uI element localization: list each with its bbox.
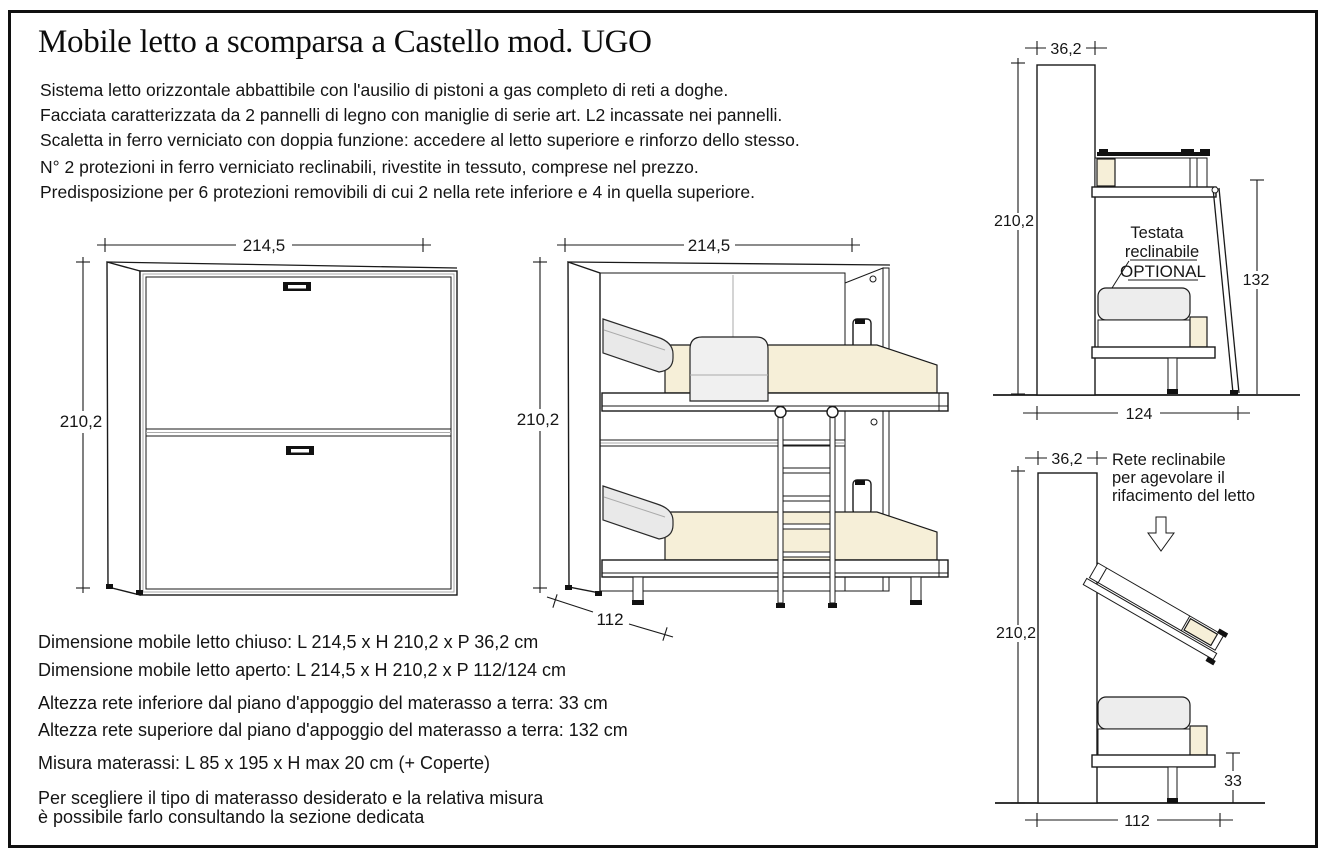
note-line-2: per agevolare il xyxy=(1112,469,1225,487)
height-dimension: 210,2 xyxy=(994,58,1034,394)
note-line-1: Rete reclinabile xyxy=(1112,451,1226,469)
cabinet-side-panel xyxy=(107,262,140,595)
spec-lower-bed-height: Altezza rete inferiore dal piano d'appog… xyxy=(38,693,608,714)
lower-mattress-end xyxy=(1190,726,1207,755)
down-arrow-icon xyxy=(1148,517,1174,551)
description-line: Predisposizione per 6 protezioni removib… xyxy=(40,182,755,203)
note-line-3: rifacimento del letto xyxy=(1112,487,1255,505)
upper-bed-height-label: 132 xyxy=(1243,272,1270,289)
upper-platform xyxy=(1092,187,1216,197)
note-line-3: OPTIONAL xyxy=(1120,262,1206,281)
reclined-bed xyxy=(1081,559,1231,666)
width-dimension-label: 214,5 xyxy=(243,236,286,255)
cabinet-foot xyxy=(565,585,572,590)
lower-bed-height-label: 33 xyxy=(1224,773,1242,790)
width-dimension: 214,5 xyxy=(97,236,431,255)
closed-cabinet xyxy=(106,262,457,595)
ladder-rung xyxy=(783,524,830,529)
spec-upper-bed-height: Altezza rete superiore dal piano d'appog… xyxy=(38,720,628,741)
optional-note: Testata reclinabile OPTIONAL xyxy=(1112,224,1206,288)
recline-note: Rete reclinabile per agevolare il rifaci… xyxy=(1112,451,1255,551)
lower-mattress-side xyxy=(1098,320,1190,347)
upper-pillow xyxy=(1097,159,1115,186)
page-title: Mobile letto a scomparsa a Castello mod.… xyxy=(38,24,652,61)
cabinet-side-view xyxy=(1037,65,1095,395)
upper-bed-platform xyxy=(602,393,948,411)
depth-closed-label: 36,2 xyxy=(1050,41,1081,58)
drawing-closed-front: 214,5 210,2 xyxy=(50,235,490,635)
height-label: 210,2 xyxy=(994,213,1034,230)
depth-dimension: 112 xyxy=(547,594,673,640)
drawing-side-recline: Rete reclinabile per agevolare il rifaci… xyxy=(985,445,1320,845)
depth-open-dimension: 124 xyxy=(1023,406,1250,423)
depth-dimension-label: 112 xyxy=(596,610,623,629)
height-label: 210,2 xyxy=(996,625,1036,642)
ladder-hook xyxy=(1212,187,1218,193)
spec-open-dimensions: Dimensione mobile letto aperto: L 214,5 … xyxy=(38,660,566,681)
wall-screw xyxy=(871,419,877,425)
depth-open-label: 112 xyxy=(1124,813,1150,830)
description-line: Sistema letto orizzontale abbattibile co… xyxy=(40,80,728,101)
note-line-2: reclinabile xyxy=(1125,243,1199,261)
cabinet-foot xyxy=(595,591,602,596)
lower-mattress-side xyxy=(1098,729,1190,755)
ladder-rung xyxy=(783,496,830,501)
cabinet-foot xyxy=(106,584,113,589)
width-dimension-label: 214,5 xyxy=(688,236,731,255)
bed-leg xyxy=(1168,358,1177,391)
ladder-rail xyxy=(778,417,783,603)
lower-bed-platform xyxy=(602,560,948,577)
wall-screw xyxy=(870,276,876,282)
lower-mattress-end xyxy=(1190,317,1207,347)
depth-closed-label: 36,2 xyxy=(1051,451,1082,468)
spec-mattress-note-2: è possibile farlo consultando la sezione… xyxy=(38,807,424,828)
upper-bed-height-dimension: 132 xyxy=(1243,180,1270,394)
ladder-rung xyxy=(783,468,830,473)
bed-leg xyxy=(633,577,643,601)
width-dimension: 214,5 xyxy=(557,236,860,255)
height-dimension: 210,2 xyxy=(517,257,560,593)
upper-bed-side xyxy=(1092,149,1216,197)
lower-bed-side xyxy=(1092,288,1215,394)
upper-panel-handle xyxy=(283,282,311,291)
lower-platform xyxy=(1092,347,1215,358)
depth-open-label: 124 xyxy=(1126,406,1153,423)
spec-closed-dimensions: Dimensione mobile letto chiuso: L 214,5 … xyxy=(38,632,538,653)
description-line: Facciata caratterizzata da 2 pannelli di… xyxy=(40,105,782,126)
upper-center-guard xyxy=(690,337,768,401)
lower-pillow xyxy=(1098,697,1190,729)
cabinet-side-panel xyxy=(568,262,600,593)
lower-bed-side xyxy=(1092,697,1215,803)
lower-bed-height-dimension: 33 xyxy=(1224,753,1242,803)
spec-mattress-note-1: Per scegliere il tipo di materasso desid… xyxy=(38,788,543,809)
depth-closed-dimension: 36,2 xyxy=(1025,41,1107,58)
lower-platform xyxy=(1092,755,1215,767)
ladder-side xyxy=(1212,187,1239,395)
spec-sheet-page: Mobile letto a scomparsa a Castello mod.… xyxy=(0,0,1324,857)
cabinet-foot xyxy=(136,590,143,595)
ladder-rung xyxy=(783,440,830,445)
spec-mattress-size: Misura materassi: L 85 x 195 x H max 20 … xyxy=(38,753,490,774)
reclined-bed-board xyxy=(1083,578,1216,659)
bed-leg xyxy=(1168,767,1177,799)
height-dimension: 210,2 xyxy=(996,466,1036,803)
description-line: Scaletta in ferro verniciato con doppia … xyxy=(40,130,800,151)
ladder-hook xyxy=(775,407,786,418)
depth-open-dimension: 112 xyxy=(1025,813,1233,830)
depth-closed-dimension: 36,2 xyxy=(1025,451,1107,468)
height-dimension-label: 210,2 xyxy=(60,412,103,431)
ladder-rail xyxy=(830,417,835,603)
bed-leg xyxy=(911,577,921,601)
height-dimension: 210,2 xyxy=(60,257,103,593)
lower-panel-handle xyxy=(286,446,314,455)
note-line-1: Testata xyxy=(1130,224,1184,242)
cabinet-side-view xyxy=(1038,473,1097,803)
drawing-open-front: 214,5 210,2 112 xyxy=(505,235,985,675)
description-line: N° 2 protezioni in ferro verniciato recl… xyxy=(40,157,699,178)
drawing-side-open: Testata reclinabile OPTIONAL 3 xyxy=(985,30,1315,445)
ladder-hook xyxy=(827,407,838,418)
height-dimension-label: 210,2 xyxy=(517,410,560,429)
lower-pillow xyxy=(1098,288,1190,320)
ladder-rung xyxy=(783,552,830,557)
